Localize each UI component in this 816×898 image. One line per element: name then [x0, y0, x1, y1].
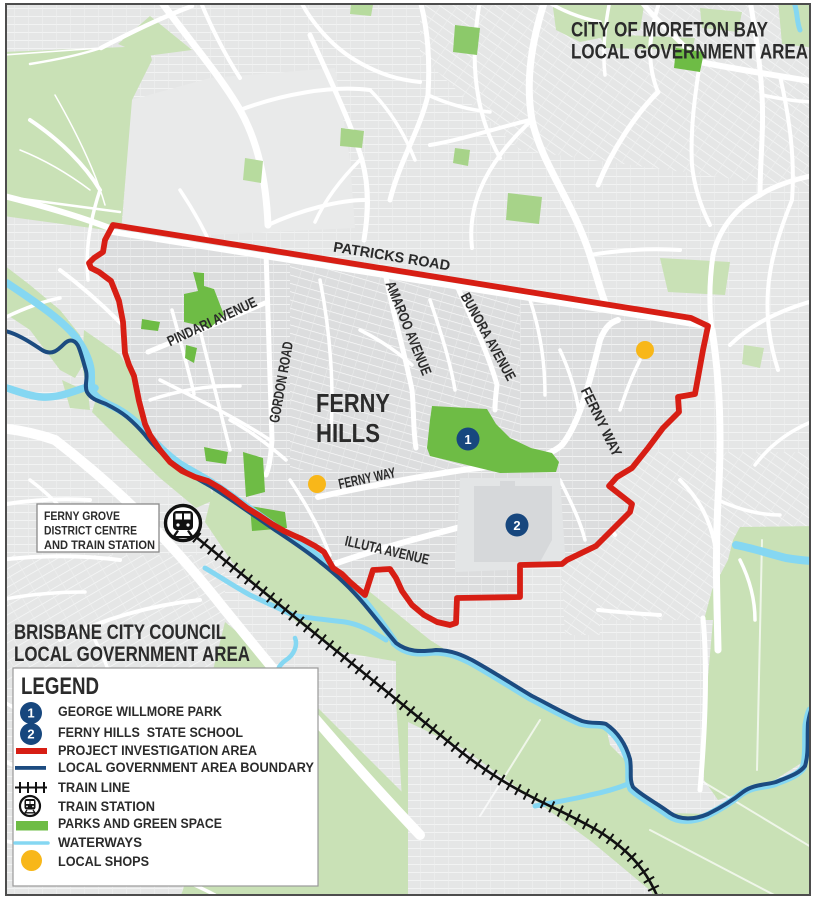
svg-text:2: 2: [27, 727, 34, 742]
svg-text:FERNY HILLS STATE SCHOOL: FERNY HILLS STATE SCHOOL: [58, 725, 243, 740]
svg-text:PARKS AND GREEN SPACE: PARKS AND GREEN SPACE: [58, 816, 222, 831]
svg-text:PROJECT INVESTIGATION AREA: PROJECT INVESTIGATION AREA: [58, 743, 257, 758]
svg-text:HILLS: HILLS: [316, 420, 380, 448]
svg-text:LOCAL GOVERNMENT AREA: LOCAL GOVERNMENT AREA: [571, 40, 808, 64]
svg-text:1: 1: [464, 432, 471, 447]
svg-text:2: 2: [513, 518, 520, 533]
svg-text:FERNY: FERNY: [316, 390, 390, 418]
svg-text:WATERWAYS: WATERWAYS: [58, 835, 142, 850]
svg-text:CITY OF MORETON BAY: CITY OF MORETON BAY: [571, 18, 768, 42]
svg-text:LEGEND: LEGEND: [21, 673, 99, 700]
svg-text:FERNY GROVE: FERNY GROVE: [44, 509, 120, 523]
svg-text:AND TRAIN STATION: AND TRAIN STATION: [44, 538, 155, 552]
svg-text:LOCAL SHOPS: LOCAL SHOPS: [58, 854, 149, 869]
svg-text:TRAIN LINE: TRAIN LINE: [58, 780, 130, 795]
svg-text:BRISBANE CITY COUNCIL: BRISBANE CITY COUNCIL: [14, 620, 226, 644]
svg-text:DISTRICT CENTRE: DISTRICT CENTRE: [44, 524, 137, 538]
svg-text:TRAIN STATION: TRAIN STATION: [58, 799, 155, 814]
svg-text:GEORGE WILLMORE PARK: GEORGE WILLMORE PARK: [58, 704, 222, 719]
svg-text:1: 1: [27, 706, 34, 721]
svg-text:LOCAL GOVERNMENT AREA BOUNDARY: LOCAL GOVERNMENT AREA BOUNDARY: [58, 760, 314, 775]
svg-text:LOCAL GOVERNMENT AREA: LOCAL GOVERNMENT AREA: [14, 642, 250, 666]
